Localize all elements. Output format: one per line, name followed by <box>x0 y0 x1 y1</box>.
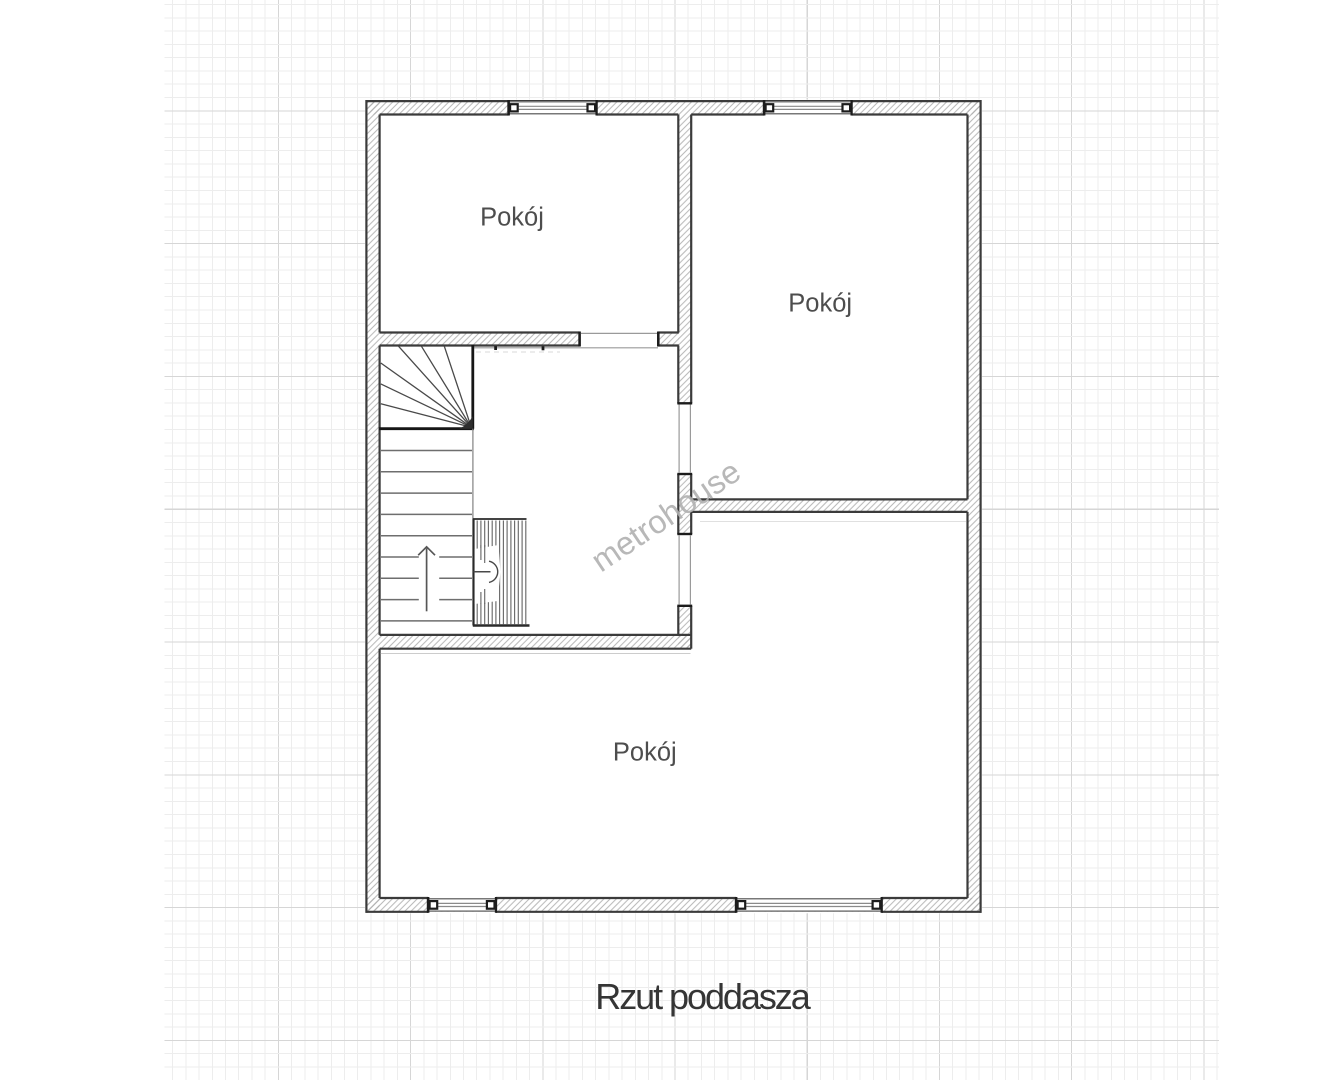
svg-text:Pokój: Pokój <box>788 289 852 317</box>
svg-text:Pokój: Pokój <box>613 739 677 767</box>
svg-text:Pokój: Pokój <box>480 203 544 231</box>
svg-text:Rzut poddasza: Rzut poddasza <box>595 976 811 1017</box>
